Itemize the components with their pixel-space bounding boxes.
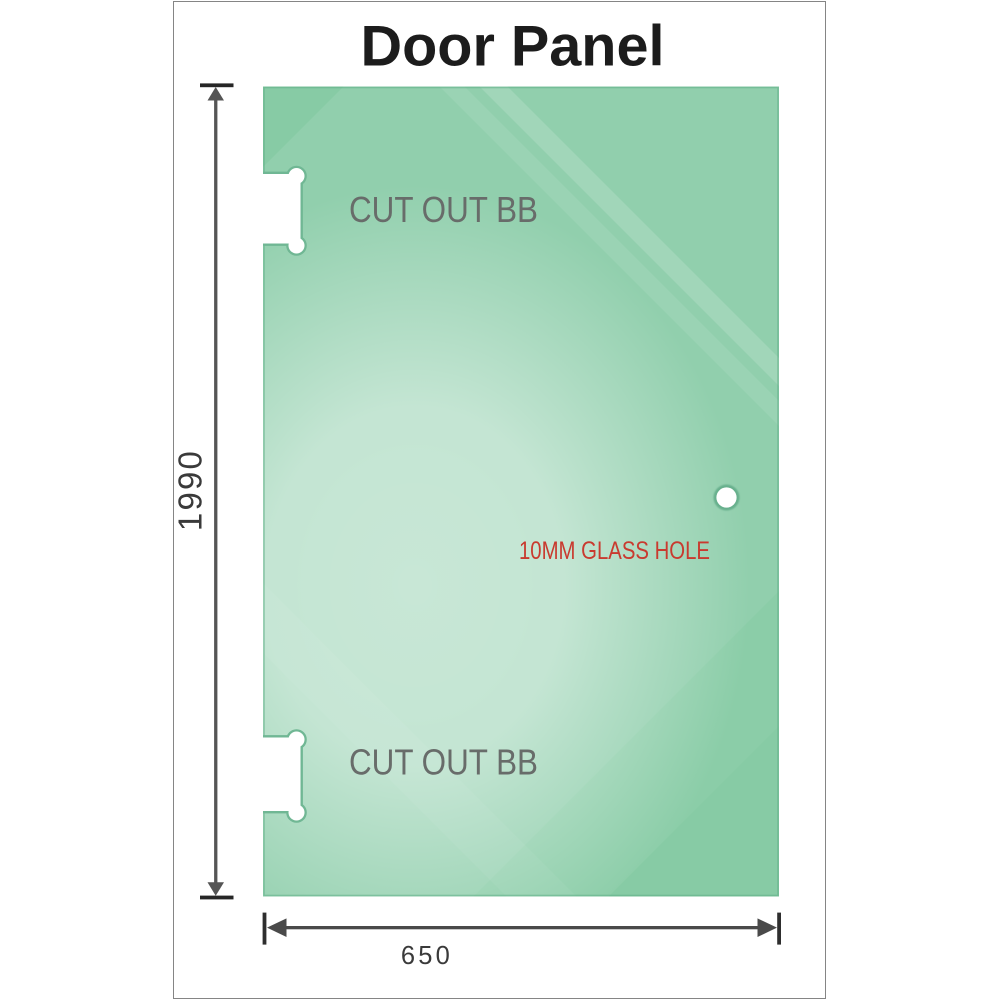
svg-text:1990: 1990 xyxy=(172,449,209,531)
svg-text:650: 650 xyxy=(401,942,453,970)
svg-text:CUT OUT BB: CUT OUT BB xyxy=(349,189,538,230)
svg-text:CUT OUT BB: CUT OUT BB xyxy=(349,742,538,783)
svg-text:Door Panel: Door Panel xyxy=(361,15,665,79)
svg-text:10MM GLASS HOLE: 10MM GLASS HOLE xyxy=(519,537,710,565)
